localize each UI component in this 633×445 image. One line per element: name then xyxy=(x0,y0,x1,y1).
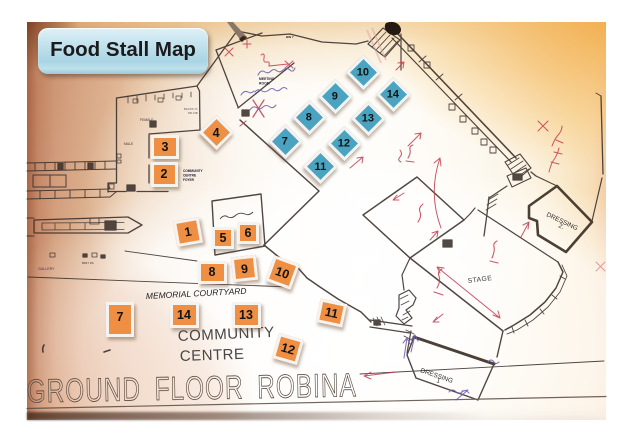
svg-text:DB 13B: DB 13B xyxy=(188,111,198,115)
svg-text:MEMORIAL COURTYARD: MEMORIAL COURTYARD xyxy=(146,286,247,301)
svg-text:GROUND FLOOR ROBINA: GROUND FLOOR ROBINA xyxy=(26,366,357,409)
svg-text:CENTRE: CENTRE xyxy=(180,346,245,365)
svg-text:1: 1 xyxy=(435,377,441,385)
svg-text:FEMALE: FEMALE xyxy=(140,118,154,122)
svg-text:BIN 7: BIN 7 xyxy=(286,35,294,39)
svg-text:FOYER: FOYER xyxy=(183,178,195,182)
svg-text:GALLERY: GALLERY xyxy=(38,267,55,271)
svg-text:MALE: MALE xyxy=(124,142,134,146)
svg-text:STAGE: STAGE xyxy=(467,275,492,285)
svg-text:CENTRE: CENTRE xyxy=(183,174,196,178)
svg-text:COMMUNITY: COMMUNITY xyxy=(183,169,204,173)
svg-text:ROOM: ROOM xyxy=(259,82,270,86)
svg-text:B847 D6: B847 D6 xyxy=(82,261,94,265)
svg-text:MEETING: MEETING xyxy=(259,77,275,81)
